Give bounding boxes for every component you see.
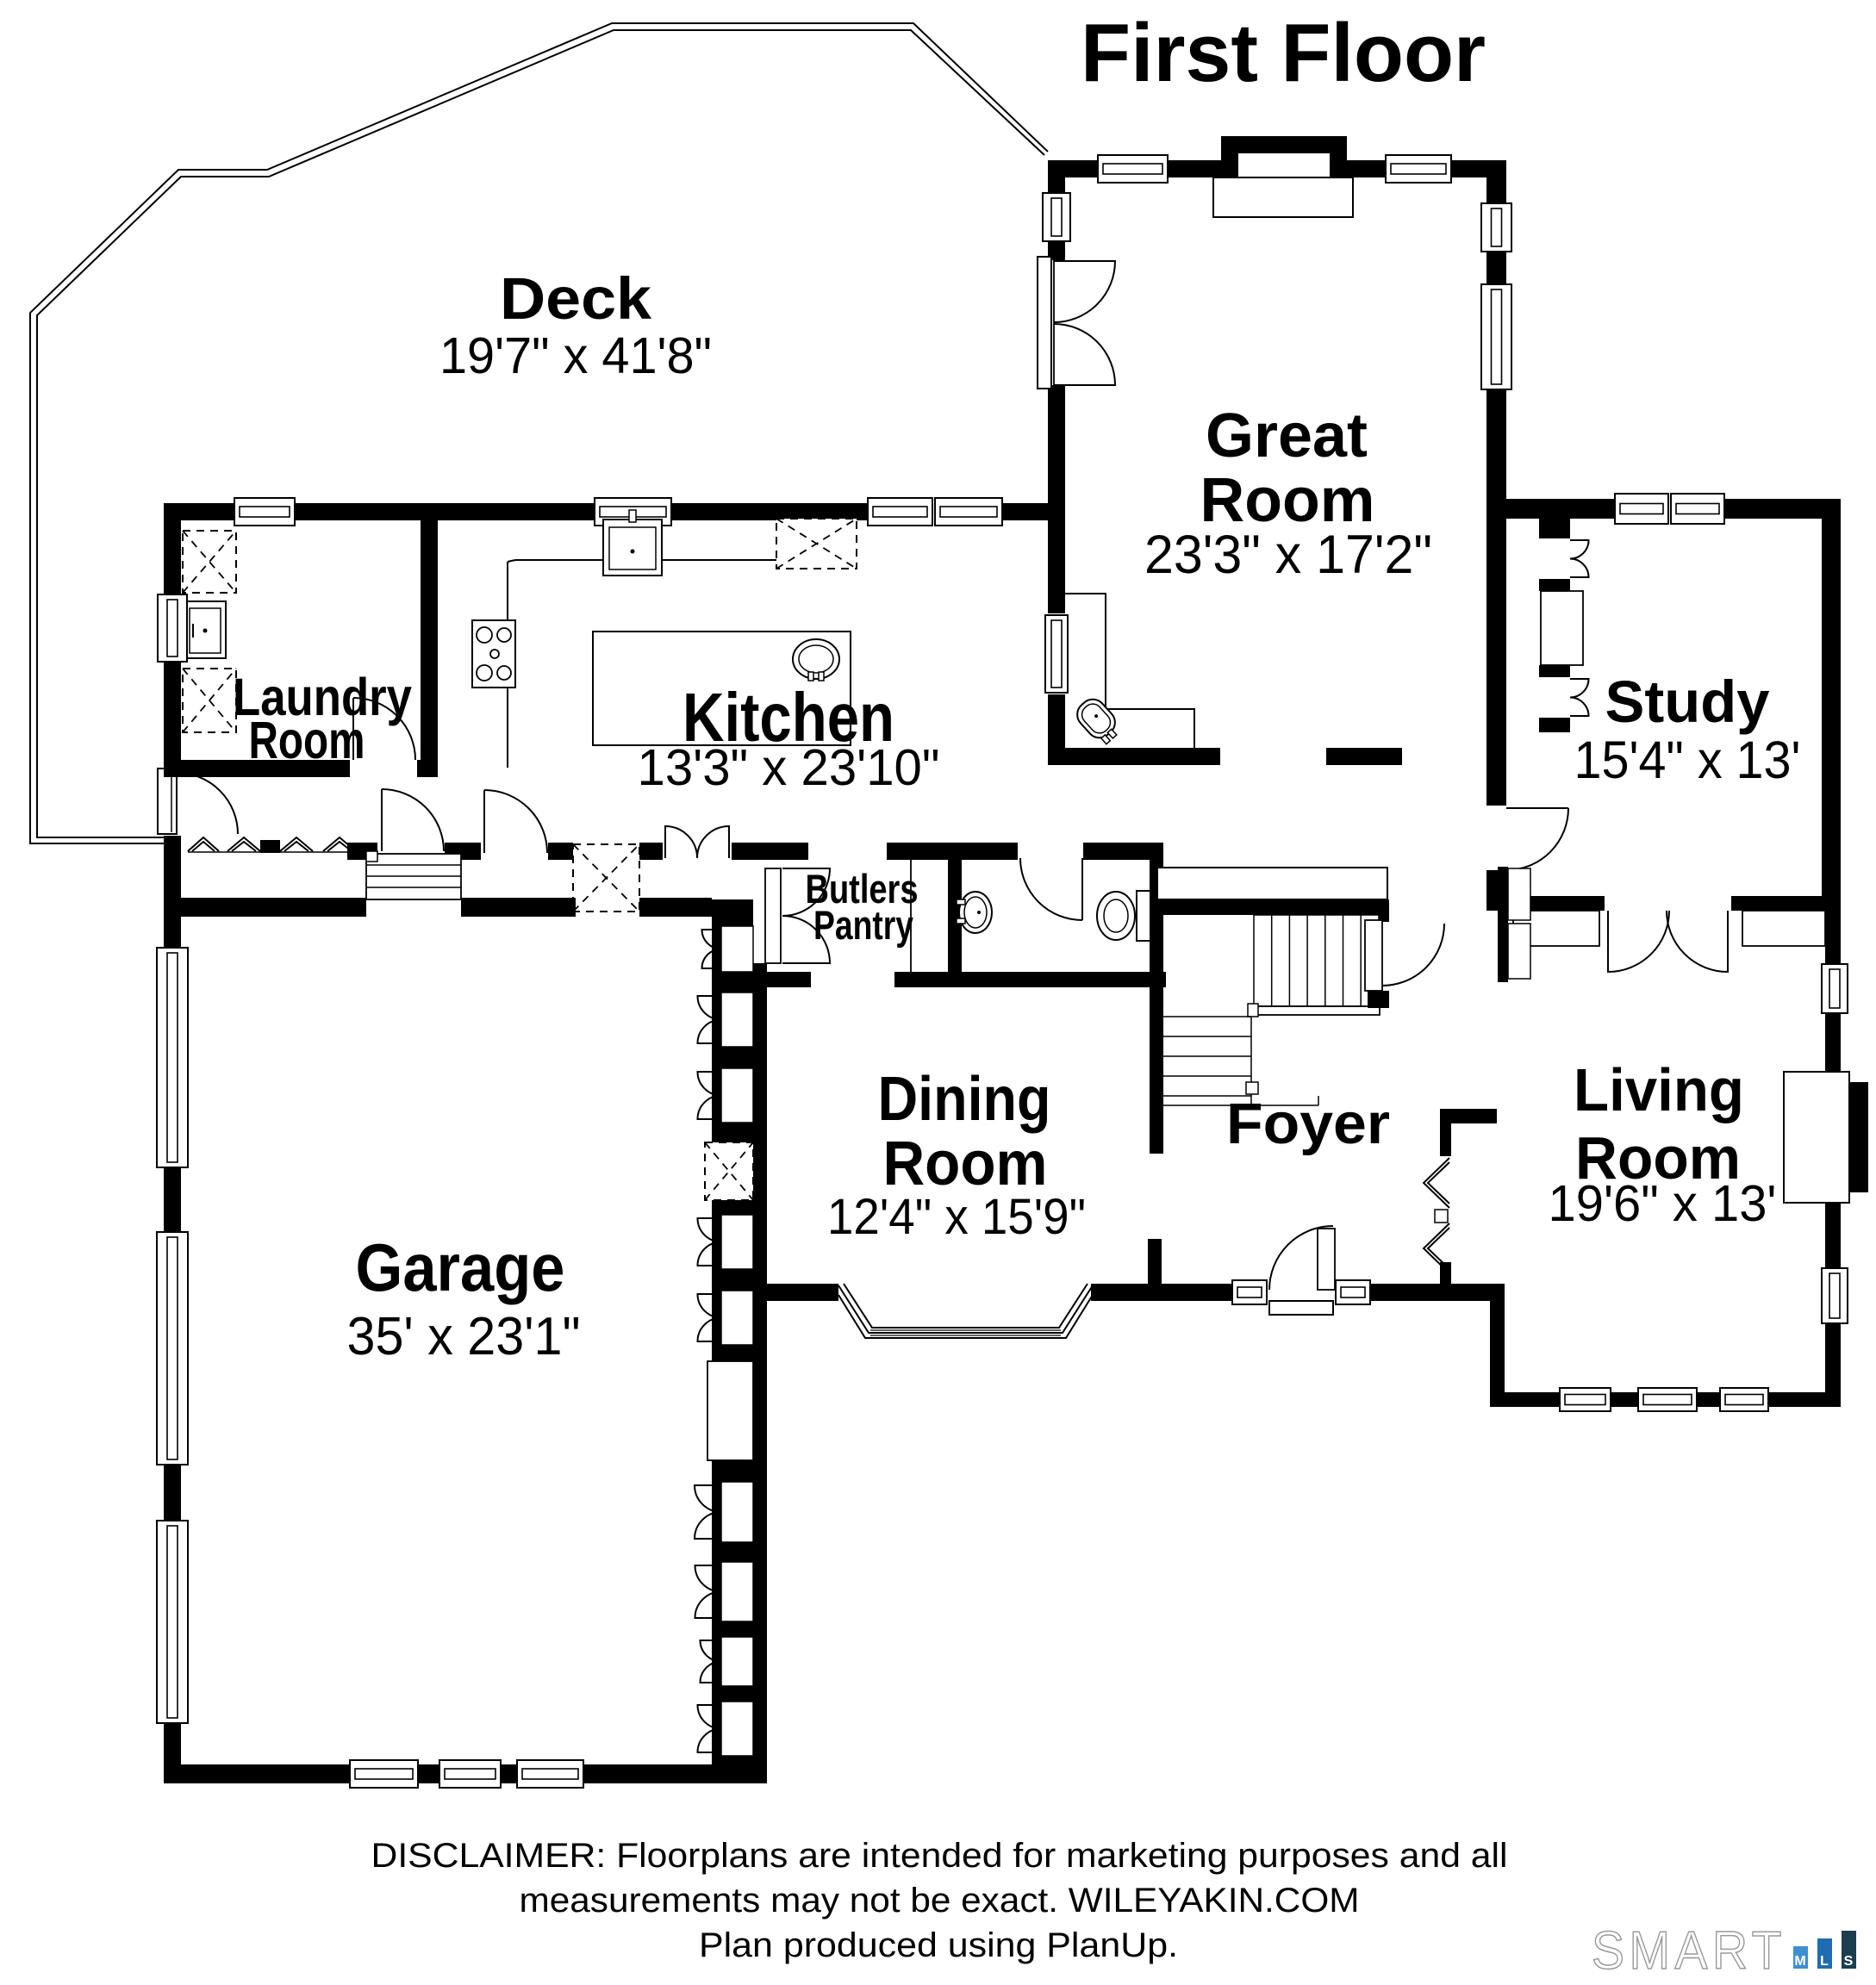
svg-text:Dining: Dining [878, 1065, 1051, 1134]
svg-text:DISCLAIMER: Floorplans are int: DISCLAIMER: Floorplans are intended for … [371, 1837, 1508, 1875]
svg-text:Plan produced using PlanUp.: Plan produced using PlanUp. [699, 1926, 1178, 1964]
svg-text:SMART: SMART [1592, 1921, 1786, 1981]
svg-text:Living: Living [1574, 1056, 1744, 1123]
svg-text:23'3" x 17'2": 23'3" x 17'2" [1144, 525, 1432, 585]
svg-text:12'4" x 15'9": 12'4" x 15'9" [827, 1189, 1086, 1245]
svg-text:13'3" x 23'10": 13'3" x 23'10" [638, 739, 940, 796]
svg-text:Foyer: Foyer [1226, 1092, 1390, 1156]
svg-text:15'4" x 13': 15'4" x 13' [1574, 731, 1801, 789]
svg-text:Room: Room [249, 711, 365, 769]
svg-text:19'7" x 41'8": 19'7" x 41'8" [439, 327, 712, 384]
svg-text:Room: Room [883, 1129, 1048, 1198]
svg-text:Study: Study [1605, 669, 1770, 735]
svg-text:Deck: Deck [500, 265, 652, 332]
svg-text:35' x 23'1": 35' x 23'1" [347, 1307, 581, 1366]
svg-text:19'6" x 13': 19'6" x 13' [1549, 1175, 1777, 1232]
svg-text:Great: Great [1206, 401, 1368, 470]
svg-text:First Floor: First Floor [1081, 7, 1486, 99]
svg-text:Garage: Garage [356, 1229, 565, 1305]
svg-text:M: M [1794, 1954, 1805, 1969]
svg-text:Pantry: Pantry [813, 902, 913, 948]
svg-text:measurements may not be exact.: measurements may not be exact. WILEYAKIN… [520, 1882, 1360, 1920]
svg-text:S: S [1844, 1954, 1854, 1969]
svg-text:L: L [1820, 1954, 1829, 1969]
